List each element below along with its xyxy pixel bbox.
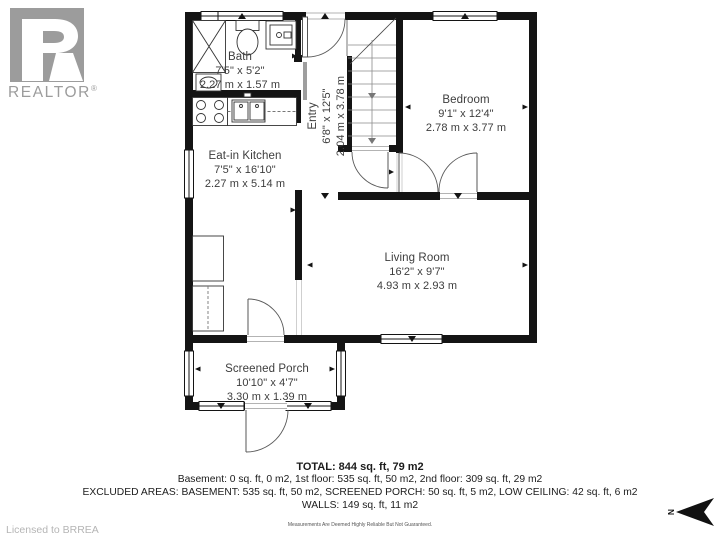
room-label-kitchen: Eat-in Kitchen 7'5" x 16'10" 2.27 m x 5.… bbox=[165, 149, 325, 191]
room-label-bath: Bath 7'5" x 5'2" 2.27 m x 1.57 m bbox=[160, 50, 320, 92]
room-dim-metric: 2.27 m x 5.14 m bbox=[165, 177, 325, 191]
room-label-porch: Screened Porch 10'10" x 4'7" 3.30 m x 1.… bbox=[177, 362, 357, 404]
summary-excluded: EXCLUDED AREAS: BASEMENT: 535 sq. ft, 50… bbox=[0, 487, 720, 500]
summary-floors: Basement: 0 sq. ft, 0 m2, 1st floor: 535… bbox=[0, 474, 720, 487]
disclaimer-text: Measurements Are Deemed Highly Reliable … bbox=[0, 522, 720, 528]
room-dim-metric: 2.04 m x 3.78 m bbox=[334, 41, 348, 191]
area-summary: TOTAL: 844 sq. ft, 79 m2 Basement: 0 sq.… bbox=[0, 461, 720, 512]
room-name: Screened Porch bbox=[177, 362, 357, 376]
room-dim-imperial: 7'5" x 5'2" bbox=[160, 64, 320, 78]
room-dim-imperial: 9'1" x 12'4" bbox=[386, 107, 546, 121]
room-dim-imperial: 7'5" x 16'10" bbox=[165, 163, 325, 177]
licensed-to-text: Licensed to BRREA bbox=[6, 524, 99, 536]
room-name: Eat-in Kitchen bbox=[165, 149, 325, 163]
summary-total: TOTAL: 844 sq. ft, 79 m2 bbox=[0, 461, 720, 474]
room-dim-imperial: 16'2" x 9'7" bbox=[337, 265, 497, 279]
room-label-bedroom: Bedroom 9'1" x 12'4" 2.78 m x 3.77 m bbox=[386, 93, 546, 135]
kitchen-fixtures-icon bbox=[193, 93, 297, 331]
room-dim-metric: 4.93 m x 2.93 m bbox=[337, 279, 497, 293]
room-dim-metric: 2.27 m x 1.57 m bbox=[160, 78, 320, 92]
room-dim-metric: 2.78 m x 3.77 m bbox=[386, 121, 546, 135]
summary-walls: WALLS: 149 sq. ft, 11 m2 bbox=[0, 500, 720, 513]
faucet-icon bbox=[244, 93, 251, 97]
room-dim-metric: 3.30 m x 1.39 m bbox=[177, 390, 357, 404]
room-name: Bath bbox=[160, 50, 320, 64]
room-name: Bedroom bbox=[386, 93, 546, 107]
fridge-icon bbox=[193, 236, 224, 281]
room-dim-imperial: 10'10" x 4'7" bbox=[177, 376, 357, 390]
room-name: Living Room bbox=[337, 251, 497, 265]
room-label-living: Living Room 16'2" x 9'7" 4.93 m x 2.93 m bbox=[337, 251, 497, 293]
